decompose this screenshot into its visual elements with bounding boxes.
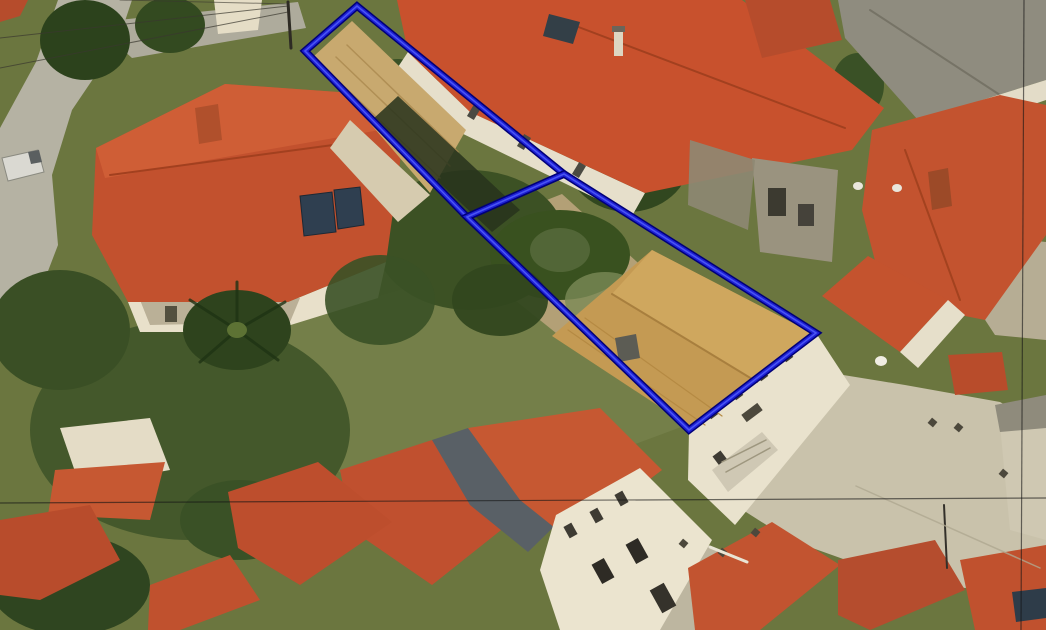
grass-patch [530, 228, 590, 272]
chimney [614, 30, 623, 56]
solar-panel [300, 192, 336, 236]
aerial-photo [0, 0, 1046, 630]
window [165, 306, 177, 322]
chimney [195, 104, 222, 144]
satellite-dish [875, 356, 887, 366]
ruin-room [768, 188, 786, 216]
satellite-dish [853, 182, 863, 190]
solar-panel-array [1012, 588, 1046, 622]
solar-panel [334, 187, 364, 229]
tree-canopy [325, 255, 435, 345]
chimney [928, 168, 952, 210]
tree-canopy [40, 0, 130, 80]
palm-crown [227, 322, 247, 338]
roof-plaza-ne [948, 352, 1008, 395]
satellite-dish [892, 184, 902, 192]
chimney-cap [612, 26, 625, 32]
aerial-imagery-viewport [0, 0, 1046, 630]
wall-fragment-top [214, 0, 262, 34]
ruin-room [798, 204, 814, 226]
ruin-stone-walls [752, 158, 838, 262]
tree-canopy [452, 264, 548, 336]
